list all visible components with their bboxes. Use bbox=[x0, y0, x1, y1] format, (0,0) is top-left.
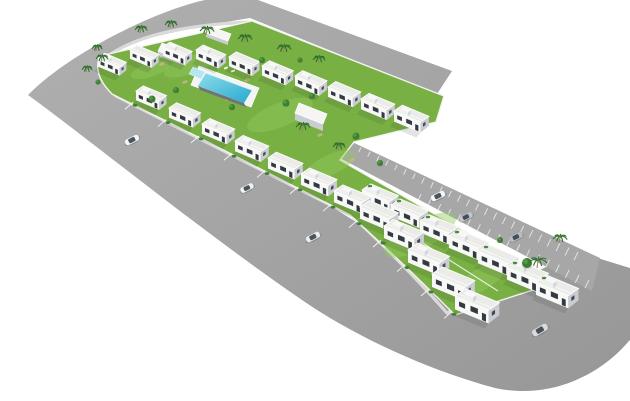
tree-highlight bbox=[378, 161, 381, 164]
palm-crown bbox=[140, 27, 142, 29]
tree-highlight bbox=[353, 133, 357, 137]
back-yard-hedge bbox=[455, 231, 459, 234]
tree-highlight bbox=[96, 80, 99, 83]
palm-crown bbox=[244, 36, 246, 38]
front-yard-hedge bbox=[357, 222, 362, 225]
palm-crown bbox=[283, 46, 285, 48]
back-yard-hedge bbox=[397, 200, 401, 203]
front-yard-hedge bbox=[405, 266, 410, 269]
front-yard-hedge bbox=[452, 313, 457, 316]
front-yard-hedge bbox=[298, 188, 303, 191]
residential-development-aerial-render bbox=[0, 0, 630, 401]
tree-highlight bbox=[283, 100, 287, 104]
tree-highlight bbox=[174, 88, 177, 91]
front-yard-hedge bbox=[166, 121, 171, 124]
palm-crown bbox=[537, 259, 539, 261]
palm-crown bbox=[206, 28, 208, 30]
front-yard-hedge bbox=[331, 206, 336, 209]
tree-highlight bbox=[310, 94, 313, 97]
palm-crown bbox=[559, 236, 561, 238]
front-yard-hedge bbox=[265, 172, 270, 175]
front-yard-hedge bbox=[199, 138, 204, 141]
palm-crown bbox=[302, 124, 304, 126]
tree-highlight bbox=[523, 259, 528, 264]
back-yard-hedge bbox=[368, 185, 372, 188]
palm-crown bbox=[170, 22, 172, 24]
back-yard-hedge bbox=[426, 216, 430, 219]
front-yard-hedge bbox=[429, 291, 434, 294]
palm-crown bbox=[96, 45, 98, 47]
tree-highlight bbox=[298, 58, 301, 61]
tree-highlight bbox=[149, 96, 153, 100]
front-yard-hedge bbox=[133, 104, 138, 107]
tree-highlight bbox=[498, 238, 501, 241]
palm-crown bbox=[86, 66, 88, 68]
palm-crown bbox=[338, 144, 340, 146]
front-yard-hedge bbox=[232, 155, 237, 158]
tree-highlight bbox=[260, 58, 263, 61]
palm-crown bbox=[318, 57, 320, 59]
back-yard-hedge bbox=[542, 277, 546, 280]
back-yard-hedge bbox=[513, 262, 517, 265]
front-yard-hedge bbox=[381, 242, 386, 245]
site-plan-render bbox=[0, 0, 630, 401]
palm-crown bbox=[101, 56, 103, 58]
back-yard-hedge bbox=[484, 246, 488, 249]
tree-highlight bbox=[230, 105, 233, 108]
